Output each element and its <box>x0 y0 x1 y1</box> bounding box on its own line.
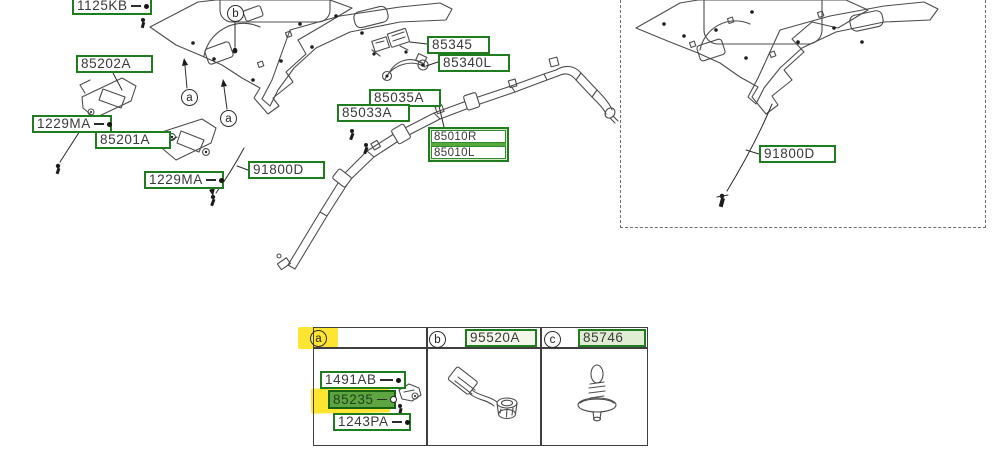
callout-circle-a-2: a <box>220 110 237 127</box>
part-number-text: 91800D <box>253 163 304 177</box>
part-label-1243pa[interactable]: 1243PA <box>333 413 411 431</box>
part-number-text: 1125KB <box>77 0 128 13</box>
part-number-text: 95520A <box>470 331 520 345</box>
part-label-85010l[interactable]: 85010L <box>431 146 506 159</box>
leader-line <box>94 123 104 125</box>
part-label-85010r[interactable]: 85010R <box>431 130 506 143</box>
part-label-91800d-right[interactable]: 91800D <box>759 145 836 163</box>
part-number-text: 85202A <box>81 57 131 71</box>
part-label-1491ab[interactable]: 1491AB <box>320 371 406 389</box>
leader-dot <box>144 4 149 9</box>
leader-line <box>206 179 216 181</box>
part-number-text: 85033A <box>342 106 392 120</box>
table-callout-c: c <box>544 331 561 348</box>
part-number-text: 85340L <box>443 56 492 70</box>
table-callout-b: b <box>429 331 446 348</box>
leader-line <box>392 421 402 423</box>
part-number-text: 1491AB <box>325 373 377 387</box>
part-label-85202a[interactable]: 85202A <box>76 55 153 73</box>
part-number-text: 1229MA <box>37 117 91 131</box>
part-label-85345[interactable]: 85345 <box>427 36 490 54</box>
part-label-85746[interactable]: 85746 <box>578 329 646 347</box>
part-label-85010-group[interactable]: 85010R 85010L <box>428 127 509 162</box>
leader-dot <box>396 378 401 383</box>
part-number-text: 1229MA <box>149 173 203 187</box>
leader-dot <box>405 420 410 425</box>
callout-letter: b <box>232 8 238 20</box>
part-label-1125kb[interactable]: 1125KB <box>72 0 152 15</box>
right-headliner-drawing <box>636 0 938 207</box>
part-number-text: 85201A <box>100 133 150 147</box>
part-number-text: 85035A <box>374 91 424 105</box>
part-number-text: 91800D <box>764 147 815 161</box>
callout-letter: a <box>225 113 231 125</box>
part-label-85033a[interactable]: 85033A <box>337 104 410 122</box>
part-number-text: 85345 <box>432 38 473 52</box>
callout-letter: c <box>550 334 556 346</box>
part-number-text: 1243PA <box>338 415 389 429</box>
callout-letter: a <box>315 333 321 345</box>
part-number-text: 85010R <box>434 131 477 143</box>
table-callout-a: a <box>310 330 327 347</box>
part-number-text: 85235 <box>333 393 374 407</box>
table-header-line <box>314 347 647 349</box>
callout-letter: a <box>186 92 192 104</box>
part-label-85340l[interactable]: 85340L <box>438 54 510 72</box>
leader-line <box>377 399 387 401</box>
callout-letter: b <box>434 334 440 346</box>
table-divider-1 <box>426 328 428 445</box>
part-label-91800d-left[interactable]: 91800D <box>248 161 325 179</box>
leader-dot <box>107 122 112 127</box>
leader-dot <box>219 178 224 183</box>
part-label-95520a[interactable]: 95520A <box>465 329 537 347</box>
part-number-text: 85010L <box>434 147 475 159</box>
part-label-85235[interactable]: 85235 <box>328 390 396 409</box>
parts-diagram-page: 1125KB 85202A 1229MA 85201A 1229MA 91800… <box>0 0 1000 456</box>
part-label-1229ma-2[interactable]: 1229MA <box>144 171 224 189</box>
callout-circle-a-1: a <box>181 89 198 106</box>
leader-line <box>380 379 393 381</box>
callout-circle-b: b <box>227 5 244 22</box>
part-number-text: 85746 <box>583 331 624 345</box>
leader-ring <box>390 396 397 403</box>
table-divider-2 <box>540 328 542 445</box>
part-label-85201a[interactable]: 85201A <box>95 131 171 149</box>
leader-line <box>131 5 141 7</box>
